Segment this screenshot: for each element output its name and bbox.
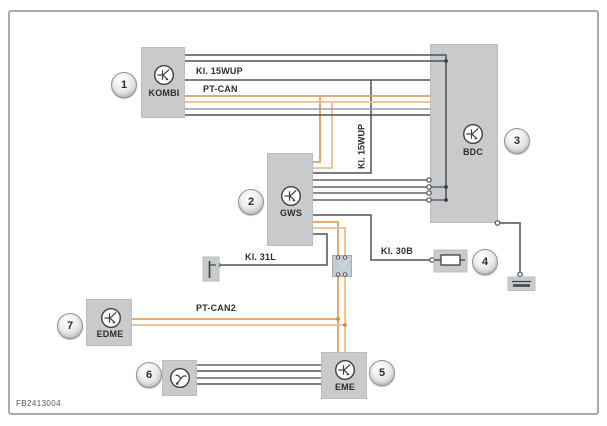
control-unit-icon	[334, 359, 356, 381]
item-number-1: 1	[111, 72, 137, 98]
wiring-diagram-page: { "figure": { "code": "FB2413004" }, "co…	[0, 0, 607, 426]
figure-code: FB2413004	[16, 399, 61, 408]
ecu-label-kombi: KOMBI	[142, 88, 186, 98]
item-number-2: 2	[238, 189, 264, 215]
ecu-box-gws: GWS	[267, 153, 313, 246]
ecu-box-kombi: KOMBI	[141, 47, 185, 118]
item-number-3: 3	[504, 128, 530, 154]
ecu-box-eme: EME	[321, 352, 367, 399]
item-number-4: 4	[472, 249, 498, 275]
item-number-6: 6	[136, 362, 162, 388]
control-unit-icon	[153, 64, 175, 86]
ecu-box-edme: EDME	[86, 299, 132, 346]
ecu-label-edme: EDME	[87, 329, 133, 339]
control-unit-icon	[100, 307, 122, 329]
label-kl30b: Kl. 30B	[381, 246, 413, 256]
control-unit-icon	[280, 185, 302, 207]
label-pt-can: PT-CAN	[203, 84, 238, 94]
ecu-label-eme: EME	[322, 382, 368, 392]
ecu-label-bdc: BDC	[451, 147, 495, 157]
label-kl15wup-vertical: Kl. 15WUP	[357, 112, 368, 182]
label-pt-can2: PT-CAN2	[196, 303, 236, 313]
actuator-icon	[169, 367, 191, 389]
item-number-7: 7	[57, 313, 83, 339]
label-kl31l: Kl. 31L	[245, 252, 276, 262]
ecu-box-bdc: BDC	[430, 44, 498, 223]
label-kl15wup: Kl. 15WUP	[196, 66, 243, 76]
item-number-5: 5	[369, 360, 395, 386]
control-unit-icon	[462, 123, 484, 145]
ecu-label-gws: GWS	[268, 208, 314, 218]
actuator-box	[162, 360, 197, 396]
